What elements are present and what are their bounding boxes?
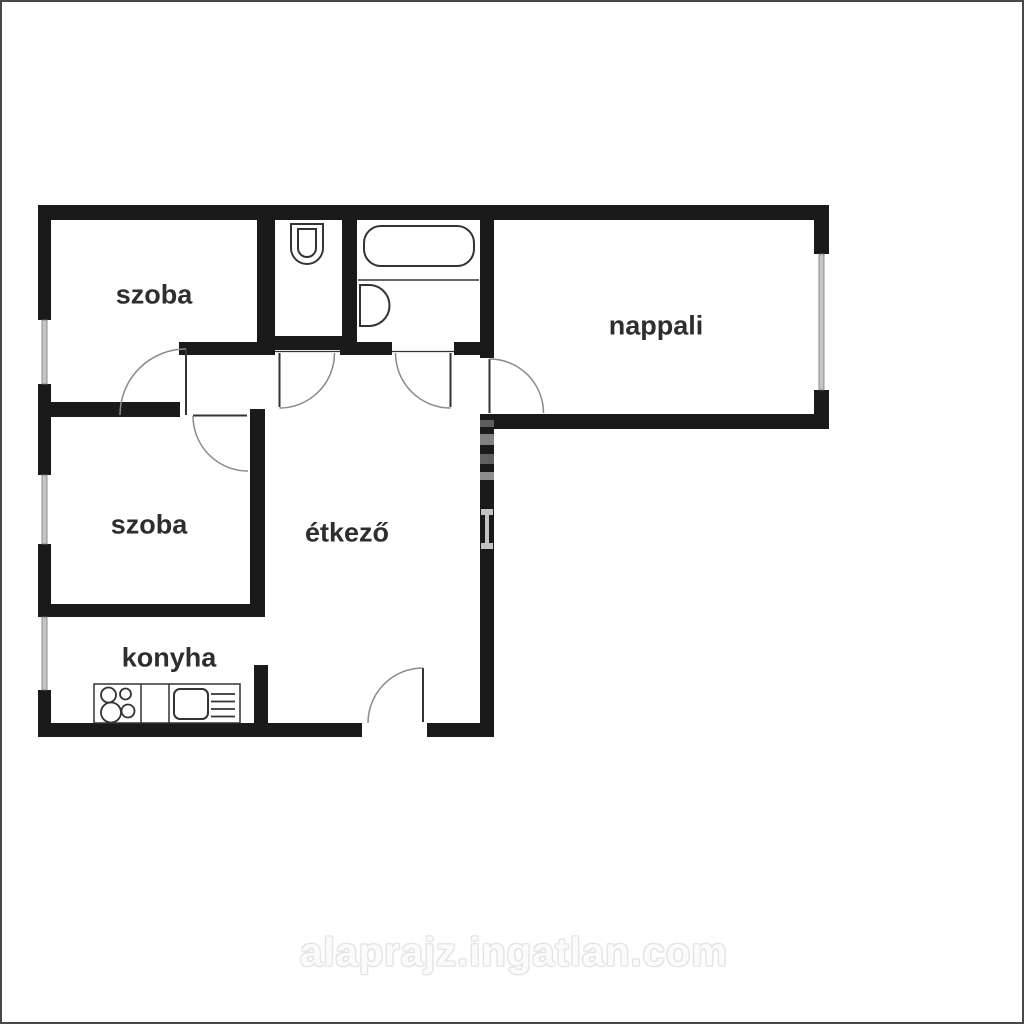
kitchen-sink-icon (174, 689, 208, 719)
wall-szoba1-right (257, 220, 275, 355)
door-entry (368, 668, 423, 723)
wall-hall-top-b (340, 342, 392, 355)
door-bathroom (392, 352, 454, 409)
wall-szoba2-top (38, 402, 180, 417)
wall-bottom-b (427, 723, 494, 737)
wall-bath-nappali-divider (480, 220, 494, 358)
wall-wc-bath-divider (342, 220, 357, 355)
wall-kitchen-stub (254, 665, 268, 723)
room-label-nappali: nappali (609, 311, 704, 342)
drainboard-icon (211, 694, 235, 717)
toilet-icon (291, 224, 323, 264)
wall-nappali-bottom (480, 414, 829, 429)
stove-icon (101, 688, 135, 723)
window-nappali (814, 254, 829, 390)
wall-wc-bottom-lintel (272, 336, 342, 350)
windows (38, 254, 829, 690)
wall-bottom-a (38, 723, 362, 737)
door-wc (275, 352, 340, 409)
wall-right-upper (814, 220, 829, 254)
window-konyha (38, 617, 51, 690)
site-watermark: alaprajz.ingatlan.com (300, 931, 728, 976)
floor-plan: szoba nappali szoba étkező konyha alapra… (0, 0, 1024, 1024)
washbasin-icon (360, 285, 390, 326)
window-szoba2 (38, 475, 51, 544)
window-szoba1 (38, 320, 51, 384)
wall-hall-top-a (179, 342, 260, 355)
room-label-etkezo: étkező (305, 518, 389, 549)
room-label-szoba-1: szoba (116, 280, 193, 311)
wall-szoba2-right (250, 409, 265, 617)
wall-hall-top-c (454, 342, 494, 355)
wall-szoba2-bottom (38, 604, 265, 617)
room-label-szoba-2: szoba (111, 510, 188, 541)
bathtub-icon (358, 226, 479, 280)
door-szoba2 (193, 416, 248, 472)
door-nappali (490, 359, 544, 413)
wall-top (38, 205, 829, 220)
room-label-konyha: konyha (122, 643, 217, 674)
